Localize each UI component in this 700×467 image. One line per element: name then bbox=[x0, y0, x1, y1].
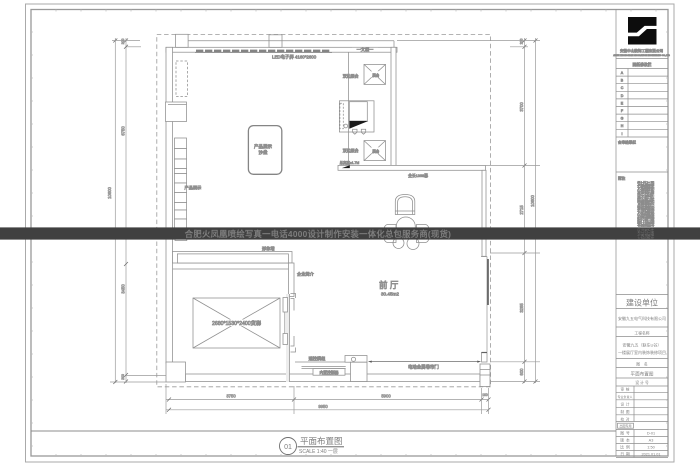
svg-text:本图纸版权归设计方所有不得转作他用: 本图纸版权归设计方所有不得转作他用 bbox=[651, 181, 655, 227]
svg-text:制 图: 制 图 bbox=[621, 409, 630, 414]
svg-text:工程名称: 工程名称 bbox=[634, 330, 649, 335]
svg-text:H: H bbox=[621, 124, 624, 128]
svg-text:I: I bbox=[622, 132, 623, 136]
svg-text:2680*1530*2400货梯: 2680*1530*2400货梯 bbox=[212, 319, 261, 327]
svg-text:设 计 号: 设 计 号 bbox=[635, 380, 649, 385]
svg-text:3285: 3285 bbox=[519, 303, 524, 313]
svg-text:企业简介: 企业简介 bbox=[297, 270, 315, 277]
svg-text:审 核: 审 核 bbox=[621, 387, 630, 392]
svg-text:遥控模组: 遥控模组 bbox=[309, 355, 326, 362]
svg-text:专业负责人: 专业负责人 bbox=[617, 394, 632, 399]
svg-text:再施工方: 再施工方 bbox=[647, 228, 651, 239]
svg-text:内置控制器: 内置控制器 bbox=[320, 370, 339, 375]
svg-text:全长1368幕: 全长1368幕 bbox=[408, 173, 428, 178]
svg-text:总高度≥1.7M: 总高度≥1.7M bbox=[340, 160, 360, 165]
svg-text:D-01: D-01 bbox=[647, 431, 655, 435]
svg-text:版 本: 版 本 bbox=[620, 437, 630, 442]
svg-text:产品展示: 产品展示 bbox=[185, 184, 202, 191]
svg-text:电动金属卷帘门: 电动金属卷帘门 bbox=[408, 363, 439, 370]
svg-text:作他用不: 作他用不 bbox=[651, 228, 655, 239]
svg-text:3450: 3450 bbox=[121, 284, 126, 294]
svg-text:沙盘: 沙盘 bbox=[259, 149, 268, 155]
svg-text:附注: 附注 bbox=[618, 176, 626, 181]
svg-text:1:50: 1:50 bbox=[647, 445, 654, 449]
svg-text:施工之前请先核对现场尺寸无误后施工: 施工之前请先核对现场尺寸无误后施工 bbox=[640, 181, 644, 227]
svg-text:100: 100 bbox=[482, 393, 488, 397]
svg-text:范执行规: 范执行规 bbox=[644, 228, 648, 239]
svg-text:图纸修改栏: 图纸修改栏 bbox=[633, 62, 652, 67]
svg-text:平面布置图: 平面布置图 bbox=[300, 436, 343, 446]
svg-text:安徽九五电气科技有限公司: 安徽九五电气科技有限公司 bbox=[618, 315, 666, 321]
svg-text:寸为准可: 寸为准可 bbox=[637, 228, 641, 239]
svg-text:形象墙: 形象墙 bbox=[262, 245, 275, 252]
svg-text:5900: 5900 bbox=[381, 394, 391, 399]
svg-text:后施工设: 后施工设 bbox=[640, 228, 644, 239]
svg-text:比 例: 比 例 bbox=[620, 444, 630, 449]
svg-text:双边展台: 双边展台 bbox=[343, 147, 359, 153]
svg-text:图 号: 图 号 bbox=[620, 430, 630, 435]
svg-text:出图专用: 出图专用 bbox=[619, 423, 631, 428]
svg-text:6750: 6750 bbox=[121, 126, 126, 136]
svg-text:展台: 展台 bbox=[372, 149, 380, 154]
svg-text:3700: 3700 bbox=[519, 102, 524, 112]
svg-text:设 计: 设 计 bbox=[621, 402, 630, 407]
svg-text:10600: 10600 bbox=[107, 187, 112, 199]
svg-text:ANHUI ZHONGSHAN DECORATION ENG: ANHUI ZHONGSHAN DECORATION ENGINEERING C… bbox=[613, 54, 670, 57]
svg-text:双边展台: 双边展台 bbox=[343, 73, 359, 79]
svg-text:G: G bbox=[621, 117, 624, 121]
svg-text:SCALE 1:40 一层: SCALE 1:40 一层 bbox=[299, 449, 338, 455]
svg-text:9950: 9950 bbox=[318, 404, 328, 409]
svg-text:200: 200 bbox=[520, 38, 524, 44]
svg-text:校 对: 校 对 bbox=[621, 416, 630, 421]
svg-text:本图所注尺寸均需以现场实际尺寸为准: 本图所注尺寸均需以现场实际尺寸为准 bbox=[637, 181, 641, 227]
svg-text:200: 200 bbox=[121, 38, 125, 44]
svg-text:600: 600 bbox=[519, 368, 524, 376]
svg-text:一文柜一: 一文柜一 bbox=[357, 46, 374, 53]
svg-text:D: D bbox=[621, 94, 624, 98]
svg-text:A3: A3 bbox=[649, 438, 654, 442]
svg-text:前 厅: 前 厅 bbox=[379, 280, 399, 290]
svg-text:图中未尽事宜请参照国家有关规范执行: 图中未尽事宜请参照国家有关规范执行 bbox=[644, 181, 648, 227]
svg-text:建设单位: 建设单位 bbox=[626, 298, 658, 308]
svg-text:2021.01.01: 2021.01.01 bbox=[641, 452, 660, 456]
svg-text:隐蔽工程需经验收合格之后方可再施工: 隐蔽工程需经验收合格之后方可再施工 bbox=[647, 181, 651, 227]
svg-text:C: C bbox=[621, 86, 624, 90]
svg-text:200: 200 bbox=[121, 374, 125, 380]
svg-text:2715: 2715 bbox=[519, 205, 524, 215]
svg-text:展台: 展台 bbox=[372, 72, 380, 77]
svg-text:图 名: 图 名 bbox=[636, 361, 648, 366]
svg-text:平面布置图: 平面布置图 bbox=[631, 370, 654, 377]
svg-text:一楼展厅室内装饰装修项目: 一楼展厅室内装饰装修项目 bbox=[618, 349, 666, 355]
svg-text:30.45m2: 30.45m2 bbox=[381, 292, 399, 297]
svg-text:安徽中山装饰工程有限公司: 安徽中山装饰工程有限公司 bbox=[620, 48, 664, 53]
svg-text:LED电子屏 4160*2600: LED电子屏 4160*2600 bbox=[272, 54, 317, 61]
svg-text:安徽九五（联东U谷）: 安徽九五（联东U谷） bbox=[623, 341, 662, 347]
svg-text:01: 01 bbox=[284, 444, 292, 451]
svg-text:10600: 10600 bbox=[530, 195, 535, 207]
svg-text:合肥火凤凰喷绘写真一电话4000设计制作安装一体化总包服务商: 合肥火凤凰喷绘写真一电话4000设计制作安装一体化总包服务商(现货) bbox=[184, 229, 452, 239]
svg-text:会审结果栏: 会审结果栏 bbox=[618, 140, 636, 145]
svg-text:日 期: 日 期 bbox=[620, 451, 630, 456]
svg-text:产品展示: 产品展示 bbox=[254, 143, 272, 150]
svg-text:3750: 3750 bbox=[226, 394, 236, 399]
